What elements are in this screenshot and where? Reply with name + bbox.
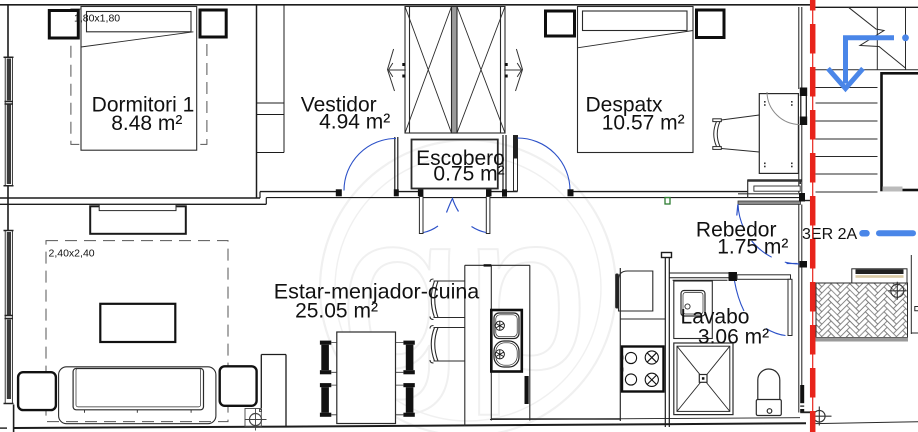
svg-text:25.05 m²: 25.05 m² <box>295 300 378 323</box>
svg-text:4.94 m²: 4.94 m² <box>319 111 390 134</box>
svg-text:10.57 m²: 10.57 m² <box>602 112 685 135</box>
svg-text:2,40x2,40: 2,40x2,40 <box>49 248 95 260</box>
svg-text:8.48 m²: 8.48 m² <box>111 112 182 135</box>
svg-text:1,80x1,80: 1,80x1,80 <box>74 13 120 25</box>
svg-text:0.75 m²: 0.75 m² <box>433 163 504 186</box>
svg-text:3.06 m²: 3.06 m² <box>698 326 769 349</box>
svg-text:1.75 m²: 1.75 m² <box>717 236 788 259</box>
